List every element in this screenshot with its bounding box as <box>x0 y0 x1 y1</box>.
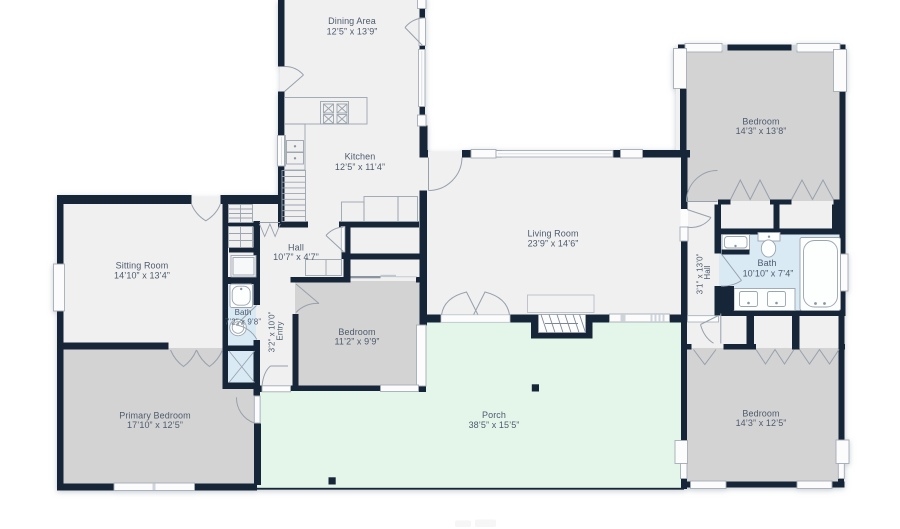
svg-text:3’1” x 13’0”: 3’1” x 13’0” <box>696 253 705 294</box>
svg-text:Sitting Room: Sitting Room <box>116 261 169 271</box>
svg-text:12’5” x 13’9”: 12’5” x 13’9” <box>327 27 378 37</box>
svg-text:14’3” x 13’8”: 14’3” x 13’8” <box>736 126 787 136</box>
svg-text:Primary Bedroom: Primary Bedroom <box>119 411 191 421</box>
svg-text:Porch: Porch <box>482 410 506 420</box>
svg-text:14’3” x 12’5”: 14’3” x 12’5” <box>736 418 787 428</box>
svg-text:10’10” x 7’4”: 10’10” x 7’4” <box>743 269 794 279</box>
svg-text:Dining Area: Dining Area <box>328 16 376 26</box>
svg-text:14’10” x 13’4”: 14’10” x 13’4” <box>114 271 170 281</box>
svg-text:Bedroom: Bedroom <box>338 327 375 337</box>
svg-text:11’2” x 9’9”: 11’2” x 9’9” <box>334 337 379 347</box>
svg-text:Entry: Entry <box>276 321 285 340</box>
svg-text:3’2” x 10’0”: 3’2” x 10’0” <box>268 311 277 352</box>
svg-text:12’5” x 11’4”: 12’5” x 11’4” <box>335 162 385 172</box>
svg-text:Living Room: Living Room <box>527 229 578 239</box>
svg-text:Bedroom: Bedroom <box>742 409 779 419</box>
svg-text:Bath: Bath <box>758 258 777 268</box>
svg-text:38’5” x 15’5”: 38’5” x 15’5” <box>469 420 520 430</box>
svg-text:Kitchen: Kitchen <box>345 152 376 162</box>
svg-text:23’9” x 14’6”: 23’9” x 14’6” <box>528 239 579 249</box>
svg-text:17’10” x 12’5”: 17’10” x 12’5” <box>127 420 183 430</box>
svg-text:Bedroom: Bedroom <box>742 117 779 127</box>
svg-text:10’7” x 4’7”: 10’7” x 4’7” <box>273 252 319 262</box>
svg-text:Hall: Hall <box>288 243 304 253</box>
svg-text:7’2” x 9’8”: 7’2” x 9’8” <box>225 318 261 327</box>
svg-text:Bath: Bath <box>235 308 252 317</box>
